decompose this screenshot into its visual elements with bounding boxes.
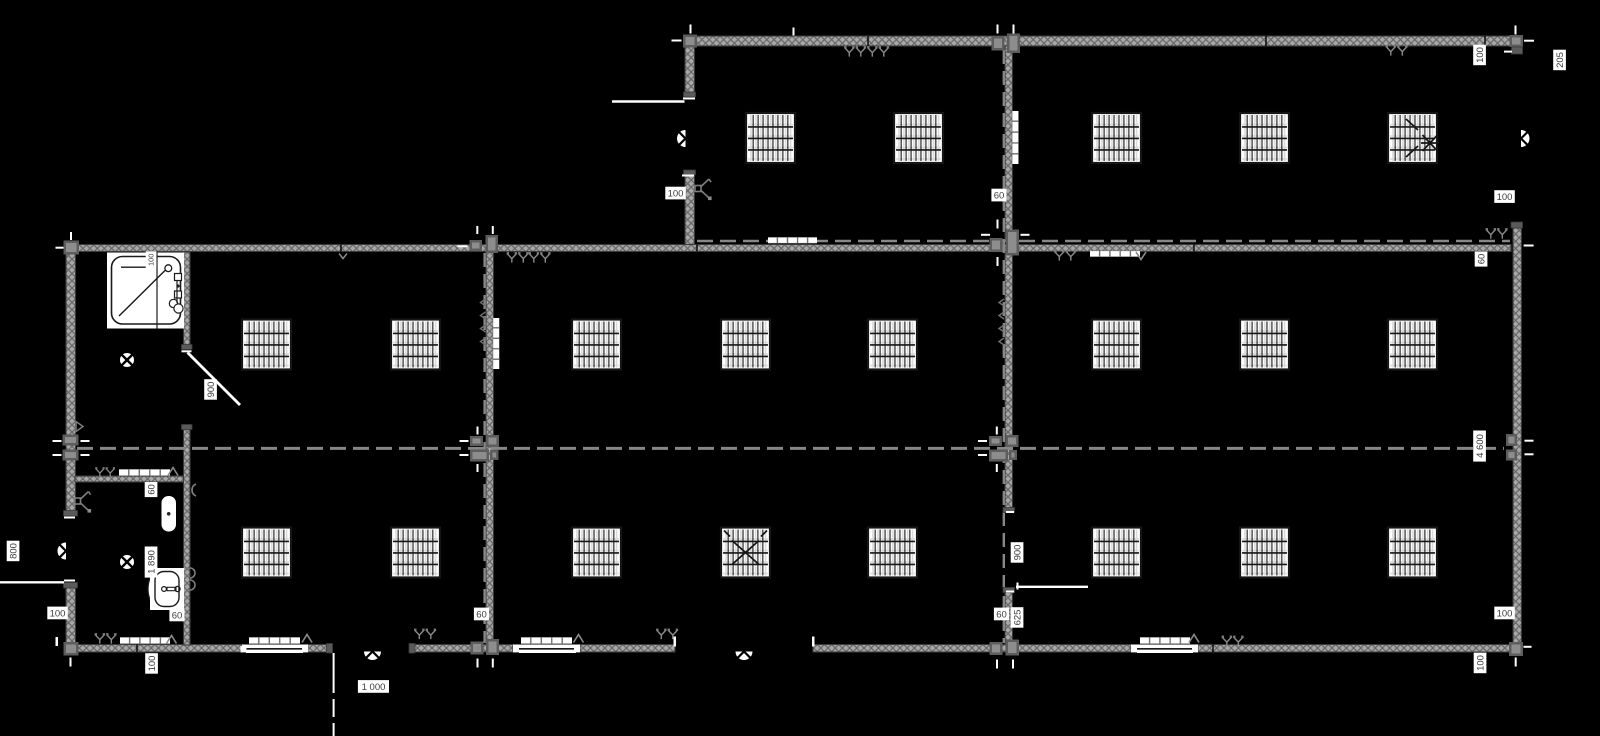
svg-text:100: 100 <box>668 188 684 199</box>
svg-text:1 890: 1 890 <box>146 550 157 574</box>
svg-text:800: 800 <box>8 543 19 559</box>
svg-text:100: 100 <box>50 608 66 619</box>
svg-text:100: 100 <box>1497 608 1513 619</box>
svg-text:900: 900 <box>206 382 217 398</box>
svg-text:1 000: 1 000 <box>362 682 386 693</box>
svg-text:60: 60 <box>996 609 1007 620</box>
svg-text:900: 900 <box>1012 545 1023 561</box>
svg-text:4 600: 4 600 <box>1475 434 1486 458</box>
svg-text:60: 60 <box>1476 254 1487 265</box>
svg-text:205: 205 <box>1555 52 1566 68</box>
svg-text:100: 100 <box>147 254 156 267</box>
svg-text:60: 60 <box>994 190 1005 201</box>
svg-text:60: 60 <box>172 610 183 621</box>
svg-text:625: 625 <box>1012 610 1023 626</box>
svg-text:60: 60 <box>146 484 157 495</box>
svg-text:60: 60 <box>476 609 487 620</box>
svg-text:100: 100 <box>1475 655 1486 671</box>
svg-text:100: 100 <box>1497 192 1513 203</box>
svg-text:100: 100 <box>147 656 158 672</box>
svg-text:100: 100 <box>1475 47 1486 63</box>
